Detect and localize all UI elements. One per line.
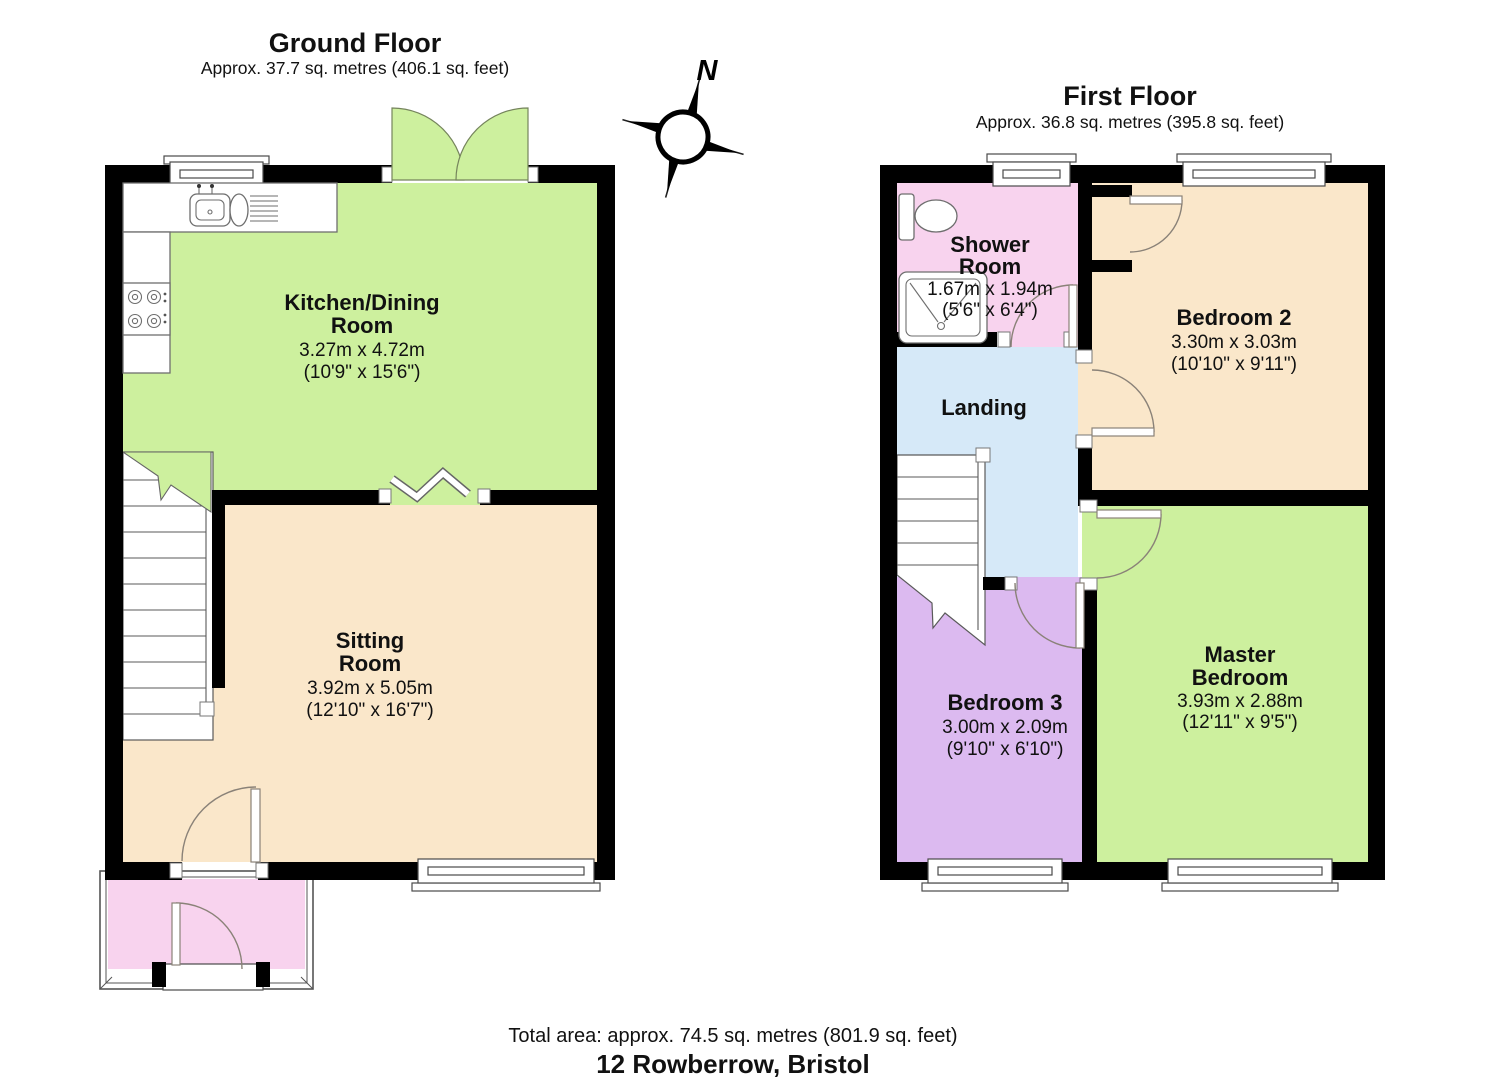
- porch-threshold: [163, 964, 263, 990]
- window-sill: [987, 154, 1076, 162]
- ground-floor-subtitle: Approx. 37.7 sq. metres (406.1 sq. feet): [201, 58, 509, 78]
- address-text: 12 Rowberrow, Bristol: [596, 1049, 870, 1079]
- kitchen-dims-imperial: (10'9" x 15'6"): [304, 362, 421, 383]
- landing-label: Landing: [941, 395, 1027, 420]
- window-sill: [412, 883, 600, 891]
- floorplan-page: Kitchen/Dining Room 3.27m x 4.72m (10'9"…: [0, 0, 1485, 1080]
- first-floor-subtitle: Approx. 36.8 sq. metres (395.8 sq. feet): [976, 112, 1284, 132]
- footer: Total area: approx. 74.5 sq. metres (801…: [508, 1025, 957, 1079]
- stairs-ground: [123, 452, 214, 740]
- first-floor-title: First Floor: [1063, 81, 1197, 111]
- bedroom2-cupboard-door-leaf: [1130, 196, 1182, 204]
- bedroom3-dims-imperial: (9'10" x 6'10"): [947, 739, 1064, 760]
- shower-dims-imperial: (5'6" x 6'4"): [942, 300, 1038, 321]
- french-door-leaf: [456, 108, 528, 180]
- floorplan-canvas: Kitchen/Dining Room 3.27m x 4.72m (10'9"…: [0, 0, 1485, 1080]
- master-dims-metric: 3.93m x 2.88m: [1177, 691, 1303, 712]
- sitting-room-door-leaf: [251, 789, 260, 862]
- newel-post: [976, 448, 990, 462]
- master-label-2: Bedroom: [1192, 665, 1289, 690]
- window-sill: [1162, 883, 1338, 891]
- titles: Ground Floor Approx. 37.7 sq. metres (40…: [201, 28, 1284, 132]
- sitting-label: Sitting: [336, 628, 404, 653]
- shower-door-leaf: [1069, 285, 1077, 347]
- bedroom3-door-leaf: [1076, 583, 1084, 648]
- bedroom3-label: Bedroom 3: [948, 690, 1063, 715]
- bedroom2-dims-imperial: (10'10" x 9'11"): [1171, 354, 1297, 375]
- sitting-label-2: Room: [339, 651, 401, 676]
- master-dims-imperial: (12'11" x 9'5"): [1182, 712, 1297, 733]
- kitchen-dims-metric: 3.27m x 4.72m: [299, 340, 425, 361]
- master-door-leaf: [1097, 510, 1161, 518]
- master-label: Master: [1205, 642, 1276, 667]
- first-floor-plan: Shower Room 1.67m x 1.94m (5'6" x 6'4") …: [880, 154, 1385, 891]
- wall: [256, 962, 270, 987]
- bedroom2-label: Bedroom 2: [1177, 305, 1292, 330]
- window-sill: [1177, 154, 1331, 162]
- kitchen-label: Kitchen/Dining: [284, 290, 439, 315]
- compass-icon: N: [605, 55, 761, 215]
- porch-door-leaf: [172, 903, 180, 965]
- total-area-text: Total area: approx. 74.5 sq. metres (801…: [508, 1025, 957, 1047]
- shower-label-2: Room: [959, 254, 1021, 279]
- ground-floor-plan: Kitchen/Dining Room 3.27m x 4.72m (10'9"…: [100, 108, 615, 990]
- window-sill: [922, 883, 1068, 891]
- porch-area: [108, 879, 305, 969]
- newel-post: [200, 702, 214, 716]
- ground-floor-title: Ground Floor: [269, 28, 442, 58]
- hob-icon: [123, 283, 170, 335]
- wall: [152, 962, 166, 987]
- sitting-dims-metric: 3.92m x 5.05m: [307, 678, 433, 699]
- bedroom3-dims-metric: 3.00m x 2.09m: [942, 717, 1068, 738]
- north-label: N: [697, 55, 719, 87]
- bedroom2-dims-metric: 3.30m x 3.03m: [1171, 332, 1297, 353]
- sitting-dims-imperial: (12'10" x 16'7"): [306, 700, 433, 721]
- french-door-leaf: [392, 108, 464, 180]
- porch: [100, 871, 313, 990]
- kitchen-label-2: Room: [331, 313, 393, 338]
- shower-dims-metric: 1.67m x 1.94m: [927, 279, 1053, 300]
- bedroom2-door-leaf: [1092, 428, 1154, 436]
